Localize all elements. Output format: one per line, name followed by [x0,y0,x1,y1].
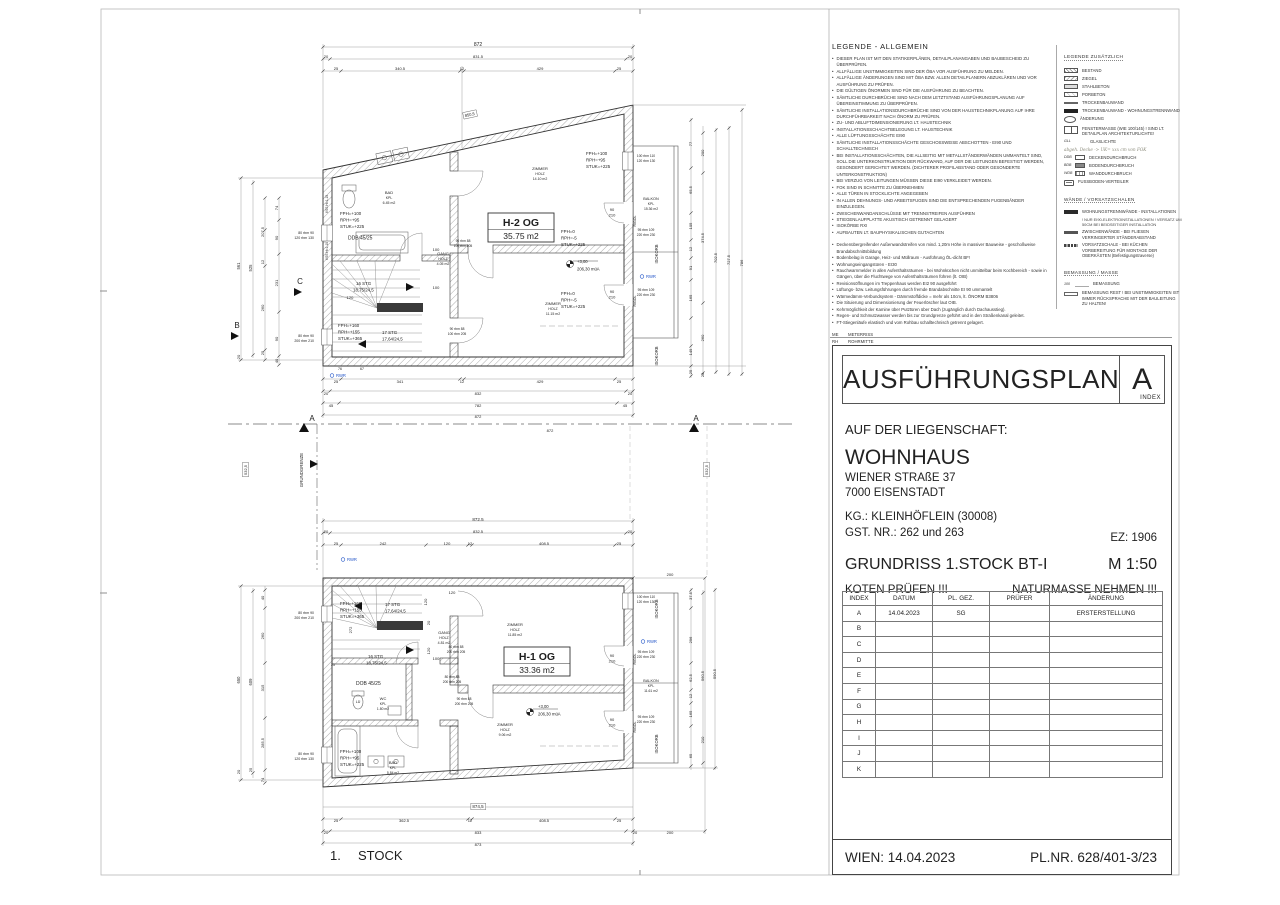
plan-text: 90 [610,717,615,722]
plan-text: 12 [460,66,465,71]
plan-text: HOLZ [510,628,520,632]
plan-text: FPH=+100 [340,211,362,216]
h1-stair-landing [377,621,423,630]
plan-text: 14.10 m2 [533,177,548,181]
plan-text: 80 rbm 88 [445,675,460,679]
plan-text: 20 [324,529,329,534]
plan-text: 25 [617,66,622,71]
legend-bullet: IN ALLEN DEHNUNGS- UND ARBEITSFUGEN SIND… [832,198,1048,211]
legend-item: FUSSBODEN-VERTEILER [1064,179,1182,186]
plan-text: BAD [385,190,393,195]
plan-text: ISOKORB [654,599,659,618]
plan-sheet: 87220831.52025340.51242925850,5561525207… [0,0,1280,905]
plan-text: 149 [688,348,693,355]
legend-item: GLLGLASLICHTE [1064,139,1182,145]
legend-item: BDBBODENDURCHBRUCH [1064,163,1182,169]
plan-text: 17 STG [382,330,398,335]
plan-text: 17 STG [385,602,401,607]
legend-bullet: SÄMTLICHE DURCHBRÜCHE SIND NACH DEM LETZ… [832,95,1048,108]
plan-text: 17,64/24,5 [382,337,403,342]
plan-text: 12 [468,541,473,546]
legend-item: BESTAND [1064,68,1182,74]
trennwand-icon [1064,109,1078,113]
plan-text: HOLZ [438,257,448,261]
plan-text: FPH=+100 [340,749,362,754]
plan-text: 210 [700,736,705,743]
plan-text: 65 [688,753,693,758]
plan-text: +3,00 [577,259,588,264]
plan-text: +3,00 [538,704,549,709]
legend-item: PORBETON [1064,92,1182,98]
plan-text: ISOKORB [654,244,659,263]
plan-text: 62.5 [688,673,693,682]
plan-text: RPH=+95 [340,756,360,761]
plan-text: 67 [360,367,364,371]
plan-text: 90 rbm 88 [450,327,465,331]
plan-text: 872 [547,428,554,433]
plan-text: 40 [260,595,265,600]
legend-item-handwritten: abgeh. Decke -> UK= xxx cm von FOK [1064,147,1182,152]
porbeton-hatch-icon [1064,92,1078,97]
plan-text: 200 [700,149,705,156]
revision-row: J [843,746,1163,762]
legend-section-title: WÄNDE / VORSATZSCHALEN [1064,197,1135,203]
plan-text: 200 rbm 210 [294,616,314,620]
plan-text: RIGOL [633,296,637,307]
plan-text: RWR [647,639,657,644]
plan-text: 272 [348,626,353,633]
plan-text: 90 rbm 88 [457,697,472,701]
legend-allgemein: LEGENDE - ALLGEMEIN DIESER PLAN IST MIT … [832,42,1048,359]
plan-text: 4.05 m2 [437,262,450,266]
plan-text: ZIMMER [545,301,561,306]
plan-text: 25 [617,379,622,384]
trockenbauwand-icon [1064,102,1078,105]
plan-text: BALKON [643,679,659,683]
legend-bullet: DIESER PLAN IST MIT DEN STATIKERPLÄNEN, … [832,56,1048,69]
plan-text: RIGOL [633,654,637,665]
plan-type: AUSFÜHRUNGSPLAN [843,356,1119,403]
plan-text: 120 rbm 130 [294,236,314,240]
plan-text: 532,5 [243,464,248,475]
plan-text: HOLZ [548,307,558,311]
bemassung-icon [1075,282,1089,288]
plan-text: 872 [474,42,483,48]
plan-text: 37.5 [688,591,693,600]
plan-text: 45 [623,403,628,408]
plan-text: 872.5 [472,517,484,522]
plan-text: 9.06 m2 [499,733,512,737]
plan-text: RPH=+95 [340,218,360,223]
plan-text: 100 [433,285,440,290]
plan-text: LÜ [356,700,361,704]
plan-text: 873 [475,842,482,847]
plan-text: KPL [648,684,655,688]
plan-text: RWR [347,557,357,562]
plan-text: 532,5 [704,464,709,475]
plan-text: 650 [236,676,241,684]
plan-text: 872 [475,414,482,419]
plan-text: ZIMMER [532,166,548,171]
plan-text: 206,30 müA [577,267,600,272]
plan-text: STUK=+225 [586,164,611,169]
footer-place-date: WIEN: 14.04.2023 [845,850,955,865]
plan-text: 16 STG [368,654,384,659]
dimension-ticks [239,45,743,844]
plan-text: RPH=+155 [340,608,362,613]
plan-text: 120 rbm 130 [637,600,656,604]
footer-plan-number: PL.NR. 628/401-3/23 [1030,850,1157,865]
plan-text: 296 [688,636,693,643]
plan-annotations: 87220831.52025340.51242925850,5561525207… [234,42,744,863]
revision-row: I [843,730,1163,746]
revision-table: INDEX DATUM PL. GEZ. PRÜFER ÄNDERUNG A14… [842,591,1163,778]
plan-text: 831.5 [473,54,484,59]
plan-text: 782 [475,403,482,408]
plan-text: VSS H=1,10 [325,195,329,213]
plan-text: FPH=0 [561,291,575,296]
plan-text: 45 [329,403,334,408]
plan-text: 285.5 [260,737,265,748]
rwr-symbols [330,275,645,644]
plan-text: 90 [610,207,615,212]
plan-text: 525 [248,264,253,272]
wohnungstrennwand-icon [1064,210,1078,214]
plan-text: C [297,277,303,286]
project-city: 7000 EISENSTADT [845,487,945,499]
plan-text: DDB 45/25 [348,236,373,242]
plan-text: 90 rbm 88 [456,239,471,243]
floorplan-h2 [322,105,679,366]
h2-stair-arrow [358,340,366,348]
plan-text: HOLZ [439,636,449,640]
plan-text: 20 [628,54,633,59]
plan-text: 786 [739,259,744,266]
plan-text: FPH=+100 [586,151,608,156]
plan-text: 120 rbm 130 [637,159,656,163]
plan-text: 220 rbm 230 [637,655,656,659]
plan-text: 242 [380,541,387,546]
plan-text: FPH=+160 [338,323,360,328]
plan-text: 100 rbm 205 [448,332,467,336]
legend-item: DDBDECKENDURCHBRUCH [1064,155,1182,161]
plan-text: A [693,414,699,423]
plan-text: 100 [433,247,440,252]
index-label: INDEX [1140,395,1161,401]
plan-text: 590.5 [712,668,717,679]
plan-text: 120 [426,647,431,654]
legend-bullet: SÄMTLICHE INSTALLATIONSDURCHBRÜCHE SIND … [832,108,1048,121]
zwischenwand-icon [1064,231,1078,234]
plan-text: 609 [248,678,253,686]
plan-text: 206,30 müA [538,712,561,717]
legend-bullet: Deckenübergreifender Außenwandstreifen v… [832,242,1048,255]
project-name: WOHNHAUS [845,446,970,470]
legend-bullet: Rauchwarnmelder in allen Aufenthaltsräum… [832,268,1048,281]
plan-text: 90 [610,289,615,294]
legend-item: 100BEMASSUNG [1064,281,1182,288]
plan-text: BAD [389,760,397,765]
plan-text: 20 [324,391,329,396]
plan-text: RIGOL [633,722,637,733]
legend-bullet: SÄMTLICHE INSTALLATIONSSCHÄCHTE GESCHOSS… [832,140,1048,153]
plan-text: 25 [248,767,253,772]
title-block-footer: WIEN: 14.04.2023 PL.NR. 628/401-3/23 [833,839,1171,874]
plan-text: 12 [460,379,465,384]
index-cell: A INDEX [1119,356,1164,403]
plan-text: 260 [700,334,705,341]
plan-text: STUK=+225 [340,224,365,229]
plan-text: 5.84 m2 [387,771,399,775]
plan-text: 210 [609,659,616,664]
project-street: WIENER STRAßE 37 [845,472,956,484]
plan-text: 220 rbm 230 [637,720,656,724]
plan-text: 25 [334,818,339,823]
plan-text: 833 [475,830,482,835]
legend-allgemein-title: LEGENDE - ALLGEMEIN [832,42,1048,51]
plan-text: 33.36 m2 [519,665,555,675]
bemassung-rest-icon [1064,292,1078,296]
plan-text: RWR [646,274,656,279]
plan-text: 40 [274,358,279,363]
plan-text: 1.80 m2 [377,707,389,711]
plan-text: RPH=+155 [338,330,360,335]
plan-text: 90 [610,653,615,658]
h1-stair-arrow [406,646,414,654]
plan-text: 832.5 [473,529,484,534]
glaslichte-icon [1075,139,1086,144]
plan-text: STUK=+365 [340,614,365,619]
plan-text: 105 [688,222,693,229]
gst-line: GST. NR.: 262 und 263 [845,527,964,539]
plan-text: 727.5 [726,254,731,265]
plan-text: DOB 45/25 [356,681,381,687]
plan-text: STUK=+225 [340,762,365,767]
revision-row: G [843,699,1163,715]
plan-text: 832 [475,391,482,396]
plan-text: 80 rbm 90 [298,231,314,235]
plan-text: 374.5 [700,232,705,243]
plan-text: 12 [688,693,693,698]
plan-text: B [234,321,239,330]
legend-item: BEMASSUNG REST ! BEI UNSTIMMIGKEITEN IST… [1064,290,1182,306]
plan-text: FPH=0 [561,229,575,234]
plan-text: 20 [236,354,241,359]
plan-text: 80 rbm 90 [298,611,314,615]
plan-text: H-1 OG [519,651,555,663]
plan-text: 220 rbm 230 [637,233,656,237]
vorsatzschale-icon [1064,244,1078,247]
plan-text: 6.45 m2 [383,201,396,205]
h1-interior-walls [332,616,624,774]
plan-text: 25 [334,379,339,384]
plan-text: 25 [334,66,339,71]
h2-stair-arrow [406,283,414,291]
plan-text: STUK=+225 [561,304,586,309]
plan-text: 100 [433,656,440,661]
h2-balcony [633,146,678,338]
plan-text: RPH=+95 [586,158,606,163]
plan-text: 100 rbm 110 [637,595,655,599]
plan-text: ISOKORB [654,346,659,365]
plan-text: 341 [397,379,404,384]
drawing-scale: M 1:50 [1108,556,1157,574]
ziegel-hatch-icon [1064,76,1078,81]
plan-text: BALKON [643,197,659,201]
legend-note: ! NUR EI90-ELEKTROINSTALLATIONEN ! VERSA… [1082,217,1182,227]
window-symbol-icon [1064,126,1078,134]
legend-item: ÄNDERUNG [1064,116,1182,124]
plan-text: 120 [347,295,354,300]
plan-text: 702.5 [713,252,718,263]
plan-text: 260 [260,632,265,639]
plan-text: 100 rbm 205 [454,244,473,248]
plan-text: 20 [633,830,638,835]
plan-text: KPL [390,766,397,770]
plan-text: 95 rbm 109 [638,650,655,654]
plan-text: 429 [537,66,544,71]
plan-text: 408.5 [539,541,550,546]
plan-text: STUK=+225 [561,242,586,247]
plan-text: 15.36 m2 [644,207,658,211]
plan-text: GANG [438,630,450,635]
plan-text: FPH=+160 [340,601,362,606]
plan-text: 200 rbm 205 [455,702,474,706]
plan-text: 20 [700,372,705,377]
legend-item: VORSATZSCHALE - BEI KÜCHEN VORBEREITUNG … [1064,242,1182,258]
plan-text: 560.5 [700,670,705,681]
plan-text: 18,75/24,5 [366,661,387,666]
plan-text: 11.15 m2 [546,312,560,316]
index-value: A [1132,363,1152,397]
revision-row: E [843,668,1163,684]
plan-text: 100 rbm 110 [637,154,655,158]
plan-text: 80 rbm 88 [449,645,464,649]
drawing-title: GRUNDRISS 1.STOCK BT-I [845,556,1047,574]
plan-text: 210 [609,213,616,218]
stahlbeton-hatch-icon [1064,84,1078,89]
plan-text: KPL [648,202,655,206]
legend-bullet: ALLFÄLLIGE ÄNDERUNGEN SIND MIT ÖBA BZW. … [832,75,1048,88]
legend-item: WDBWANDDURCHBRUCH [1064,171,1182,177]
plan-text: 165 [688,710,693,717]
legend-item: FENSTERMASSE (WIE 100/145) ! SIND LT. DE… [1064,126,1182,137]
plan-text: 340.5 [395,66,406,71]
legend-zusatz-title: LEGENDE ZUSÄTZLICH [1064,55,1123,61]
plan-text: H-2 OG [503,217,539,229]
bestand-hatch-icon [1064,68,1078,73]
legend-item: TROCKENBAUWAND [1064,100,1182,105]
revision-row: F [843,683,1163,699]
plan-text: 200 rbm 210 [294,339,314,343]
plan-text: 200 rbm 205 [447,650,466,654]
legend-zusatzlich: LEGENDE ZUSÄTZLICH BESTAND ZIEGEL STAHLB… [1056,45,1182,309]
legend-separator [830,337,1172,338]
revision-row: D [843,652,1163,668]
plan-text: 20 [628,391,633,396]
plan-text: 20 [236,769,241,774]
plan-text: 120 rbm 130 [294,757,314,761]
plan-text: 120 [423,598,428,605]
plan-text: 231 [274,279,279,286]
h1-openings [322,593,634,763]
plan-text: 80 rbm 90 [298,334,314,338]
plan-text: 11.61 m2 [644,689,658,693]
plan-text: KPL [380,702,387,706]
plan-text: 220 rbm 230 [637,293,656,297]
revision-row: H [843,715,1163,731]
plan-text: 120 [444,541,451,546]
plan-text: 210 [609,723,616,728]
title-block: AUSFÜHRUNGSPLAN A INDEX AUF DER LIEGENSC… [832,345,1172,875]
wanddurchbruch-icon [1075,171,1085,176]
plan-text: 25 [334,541,339,546]
plan-text: 20 [324,830,329,835]
plan-text: 12 [468,818,473,823]
legend-bullet: BEI INSTALLATIONSSCHÄCHTEN, DIE ALLSEITI… [832,153,1048,179]
plan-text: 362.5 [399,818,410,823]
legend-section-title: BEMASSUNG / MASSE [1064,270,1118,276]
plan-text: 210 [609,295,616,300]
plan-text: VSS H=1,10 [325,242,329,260]
plan-text: 95 rbm 109 [638,288,655,292]
plan-text: 120 [449,590,456,595]
ez-line: EZ: 1906 [1110,532,1157,544]
plan-text: RWR [336,373,346,378]
plan-text: 20 [426,620,431,625]
plan-type-box: AUSFÜHRUNGSPLAN A INDEX [842,355,1165,404]
plan-text: 25 [331,663,335,667]
plan-text: 20 [324,54,329,59]
plan-text: 18,75/24,5 [353,288,374,293]
plan-text: ZIMMER [507,622,523,627]
plan-text: 90 [274,336,279,341]
plan-text: 874,5 [472,804,484,809]
plan-text: 315 [260,684,265,691]
legend-item: TROCKENBAUWAND - WOHNUNGSTRENNWAND [1064,108,1182,113]
dimension-lines [238,44,746,846]
plan-text: 25 [617,818,622,823]
revision-row: A14.04.2023SGERSTERSTELLUNG [843,606,1163,622]
revision-row: B [843,621,1163,637]
plan-text: 561 [236,262,241,270]
plan-text: RPH=-5 [561,298,577,303]
kg-line: KG.: KLEINHÖFLEIN (30008) [845,511,997,523]
plan-text: STUK=+365 [338,336,363,341]
plan-text: 95 rbm 109 [638,715,655,719]
liegenschaft-label: AUF DER LIEGENSCHAFT: [845,422,1008,437]
legend-item: STAHLBETON [1064,84,1182,90]
plan-text: 1. [330,848,341,863]
revision-row: C [843,637,1163,653]
plan-text: 91 [688,265,693,270]
legend-item: WOHNUNGSTRENNWÄNDE - INSTALLATIONEN [1064,209,1182,214]
plan-text: 11.85 m2 [508,633,522,637]
plan-text: ISOKORB [654,734,659,753]
plan-text: 25 [688,369,693,374]
deckendurchbruch-icon [1075,155,1085,160]
plan-text: WC [380,696,387,701]
plan-text: 74 [260,777,265,782]
plan-text: RPH=-5 [561,236,577,241]
plan-text: HOLZ [500,728,510,732]
plan-text: HOLZ [535,172,545,176]
plan-text: ZIMMER [497,722,513,727]
plan-text: A [309,414,315,423]
plan-text: 95 rbm 109 [638,228,655,232]
plan-text: 165 [688,294,693,301]
plan-text: 200 rbm 205 [443,680,462,684]
